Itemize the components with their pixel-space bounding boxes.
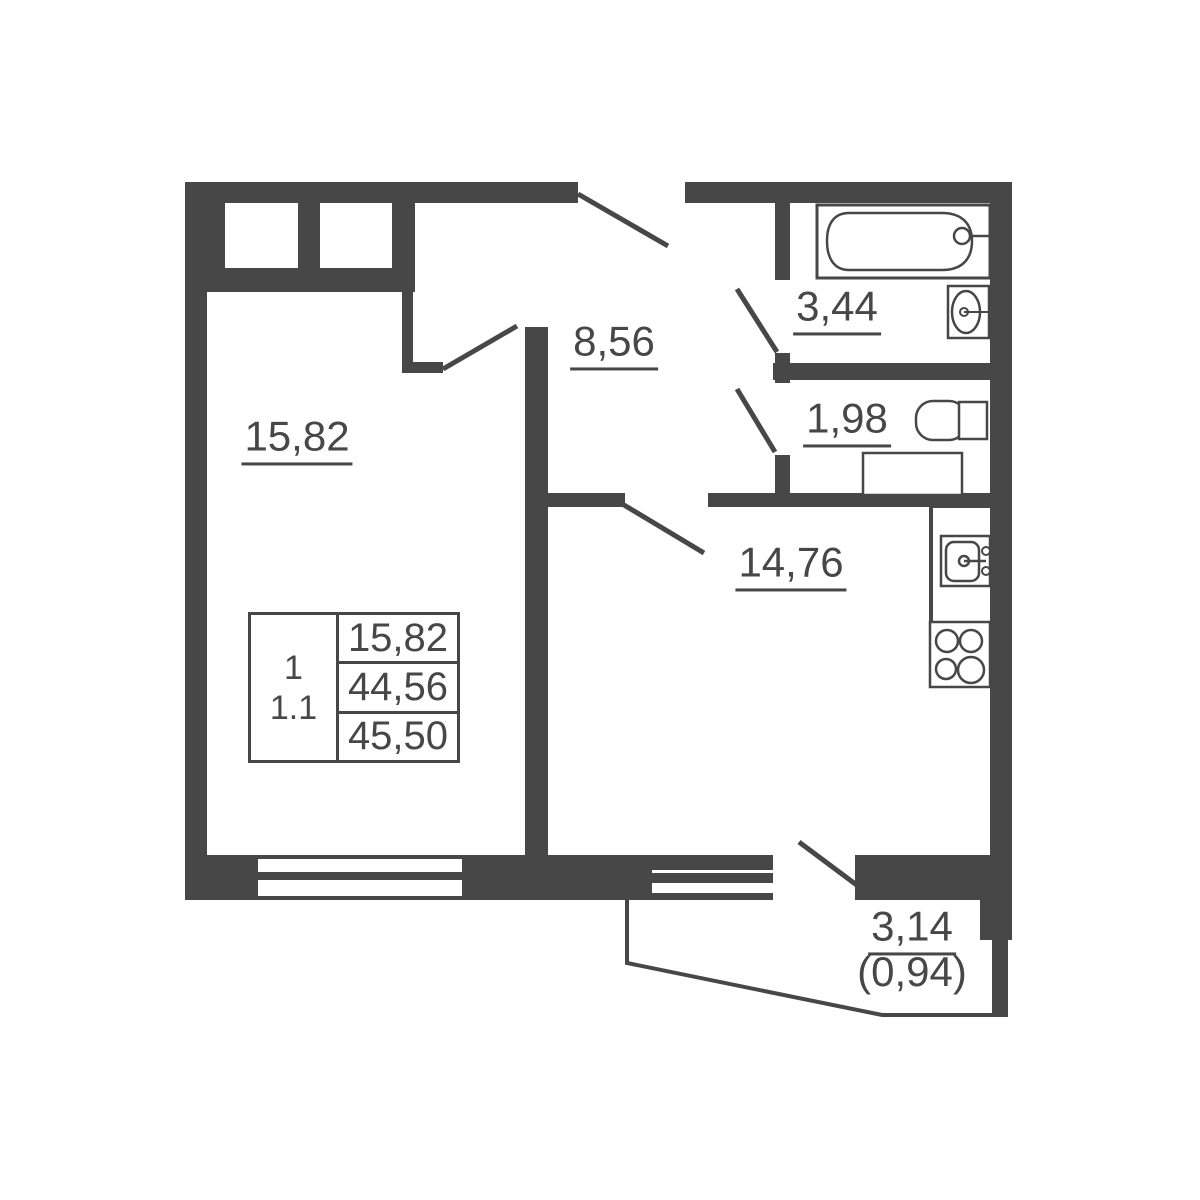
stove bbox=[930, 622, 990, 687]
living-room-window bbox=[258, 855, 462, 900]
kitchen-sink bbox=[941, 536, 990, 586]
wc-area-label: 1,98 bbox=[803, 396, 891, 447]
walls bbox=[185, 182, 1012, 1017]
living-room-area-label: 15,82 bbox=[241, 414, 352, 465]
apartment-info-table: 1 1.1 15,82 44,56 45,50 bbox=[248, 612, 460, 763]
floor-plan: 15,82 8,56 3,44 1,98 14,76 3,14 (0,94) 1… bbox=[0, 0, 1200, 1200]
hallway-area-label: 8,56 bbox=[570, 319, 658, 370]
wc-door-swing bbox=[737, 389, 775, 452]
kitchen-door-swing bbox=[624, 505, 704, 553]
kitchen-window bbox=[652, 855, 773, 900]
toilet bbox=[916, 401, 987, 440]
unit-type: 1.1 bbox=[270, 688, 317, 728]
apartment-number-cell: 1 1.1 bbox=[251, 615, 339, 760]
bathtub bbox=[817, 205, 992, 278]
bathroom-area-label: 3,44 bbox=[793, 284, 881, 335]
area-without-balcony-value: 44,56 bbox=[339, 664, 457, 713]
balcony-reduced-area-label: (0,94) bbox=[854, 950, 970, 998]
entrance-door-swing bbox=[578, 194, 668, 246]
rooms-count: 1 bbox=[284, 648, 303, 688]
total-area-value: 45,50 bbox=[339, 714, 457, 760]
living-room-door-swing bbox=[443, 326, 517, 369]
area-values-column: 15,82 44,56 45,50 bbox=[339, 615, 457, 760]
washing-machine bbox=[863, 453, 962, 495]
bathroom-door-swing bbox=[737, 289, 777, 352]
kitchen-area-label: 14,76 bbox=[735, 540, 846, 591]
balcony-door-swing bbox=[799, 842, 858, 886]
living-area-value: 15,82 bbox=[339, 615, 457, 664]
bathroom-sink bbox=[948, 286, 989, 338]
floor-plan-drawing bbox=[0, 0, 1200, 1200]
